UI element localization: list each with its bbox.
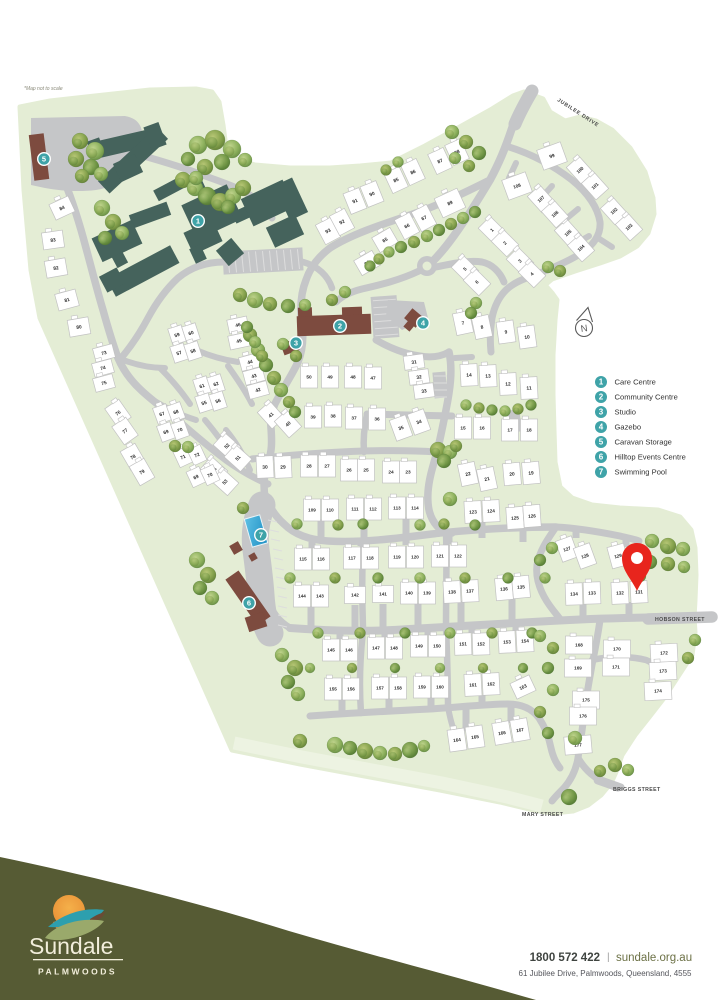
svg-text:Community Centre: Community Centre [615,393,678,402]
svg-text:171: 171 [612,665,620,670]
svg-text:118: 118 [366,556,374,561]
svg-text:173: 173 [659,668,667,673]
svg-text:BRIGGS STREET: BRIGGS STREET [613,787,661,793]
svg-text:123: 123 [469,509,477,514]
svg-text:148: 148 [390,646,398,651]
svg-text:137: 137 [466,588,474,593]
svg-text:1800 572 422: 1800 572 422 [530,952,600,964]
svg-text:159: 159 [418,685,426,690]
svg-text:23: 23 [405,470,411,476]
svg-text:136: 136 [500,586,509,592]
svg-text:126: 126 [528,513,536,519]
svg-text:26: 26 [346,468,352,474]
svg-text:*Map not to scale: *Map not to scale [24,86,63,92]
svg-text:2: 2 [599,393,604,402]
svg-text:Swimming Pool: Swimming Pool [615,468,668,477]
svg-text:157: 157 [376,686,384,691]
svg-text:151: 151 [459,641,467,646]
svg-text:117: 117 [348,556,356,561]
svg-text:17: 17 [507,428,513,434]
svg-text:1: 1 [599,378,604,387]
svg-text:112: 112 [369,507,377,512]
svg-text:110: 110 [326,508,334,513]
svg-text:146: 146 [345,648,353,653]
svg-text:149: 149 [415,644,423,649]
svg-text:134: 134 [570,591,578,596]
svg-text:155: 155 [329,687,337,692]
svg-text:138: 138 [448,589,456,594]
svg-text:133: 133 [588,590,596,595]
svg-text:14: 14 [466,372,472,378]
svg-text:37: 37 [351,416,357,422]
svg-text:116: 116 [317,557,325,562]
svg-text:154: 154 [521,638,529,643]
svg-text:120: 120 [411,555,419,560]
svg-text:145: 145 [327,648,335,653]
svg-text:139: 139 [423,591,431,596]
svg-text:50: 50 [306,375,312,381]
svg-text:5: 5 [599,438,604,447]
svg-text:19: 19 [528,470,534,476]
svg-text:141: 141 [379,592,387,597]
svg-text:61 Jubilee Drive, Palmwoods, Q: 61 Jubilee Drive, Palmwoods, Queensland,… [519,969,693,978]
svg-text:MARY STREET: MARY STREET [522,812,564,818]
svg-text:47: 47 [370,376,376,382]
svg-text:27: 27 [324,464,330,470]
svg-text:121: 121 [436,554,444,559]
svg-text:PALMWOODS: PALMWOODS [38,967,117,977]
svg-text:162: 162 [487,681,495,686]
svg-text:|: | [607,952,610,963]
svg-text:158: 158 [394,686,402,691]
svg-text:168: 168 [575,643,583,648]
svg-text:38: 38 [330,414,336,420]
svg-text:161: 161 [469,682,477,687]
svg-text:30: 30 [262,464,268,470]
svg-text:147: 147 [372,646,380,651]
svg-text:Hilltop Events Centre: Hilltop Events Centre [615,453,686,462]
svg-text:HOBSON STREET: HOBSON STREET [655,617,705,623]
svg-text:176: 176 [579,714,587,719]
svg-text:36: 36 [374,417,380,423]
svg-text:119: 119 [393,555,401,560]
svg-text:25: 25 [363,468,369,474]
svg-text:150: 150 [433,644,441,649]
svg-text:114: 114 [411,506,419,511]
svg-text:Care Centre: Care Centre [615,378,656,387]
svg-text:12: 12 [505,381,511,387]
svg-text:4: 4 [599,423,604,432]
svg-text:16: 16 [479,426,485,432]
svg-text:sundale.org.au: sundale.org.au [616,952,692,964]
svg-text:6: 6 [247,599,251,608]
svg-text:169: 169 [574,666,582,671]
svg-text:Studio: Studio [615,408,637,417]
svg-text:122: 122 [454,554,462,559]
svg-text:5: 5 [42,155,46,164]
svg-text:143: 143 [316,594,324,599]
svg-text:125: 125 [511,515,519,521]
svg-text:142: 142 [351,593,359,598]
svg-text:111: 111 [351,507,359,512]
svg-text:3: 3 [599,408,604,417]
svg-text:1: 1 [196,217,200,226]
svg-text:48: 48 [350,375,356,381]
svg-text:20: 20 [509,471,515,477]
svg-text:175: 175 [582,698,590,703]
svg-text:24: 24 [388,470,394,476]
svg-text:39: 39 [310,415,316,421]
svg-text:Gazebo: Gazebo [615,423,642,432]
svg-text:132: 132 [616,590,624,595]
svg-text:152: 152 [477,641,485,646]
svg-text:Sundale: Sundale [29,933,113,959]
svg-text:13: 13 [485,373,491,379]
svg-text:156: 156 [347,687,355,692]
svg-text:113: 113 [393,506,401,511]
svg-text:174: 174 [654,688,662,693]
svg-text:15: 15 [460,426,466,432]
svg-text:115: 115 [299,557,307,562]
svg-text:160: 160 [436,685,444,690]
svg-text:131: 131 [635,589,643,594]
svg-text:124: 124 [487,508,495,513]
svg-text:109: 109 [308,508,316,513]
svg-text:6: 6 [599,453,604,462]
svg-text:7: 7 [599,468,604,477]
svg-text:3: 3 [294,339,298,348]
svg-text:Caravan Storage: Caravan Storage [615,438,672,447]
svg-text:18: 18 [526,428,532,434]
svg-text:11: 11 [526,385,532,391]
svg-text:28: 28 [306,464,312,470]
svg-text:29: 29 [280,464,286,470]
svg-text:153: 153 [503,639,511,644]
svg-text:135: 135 [517,584,526,590]
svg-text:172: 172 [660,650,668,655]
svg-text:170: 170 [613,647,621,652]
svg-text:7: 7 [259,531,263,540]
svg-text:2: 2 [338,322,342,331]
svg-text:49: 49 [327,375,333,381]
svg-text:140: 140 [405,591,413,596]
svg-text:144: 144 [298,594,306,599]
